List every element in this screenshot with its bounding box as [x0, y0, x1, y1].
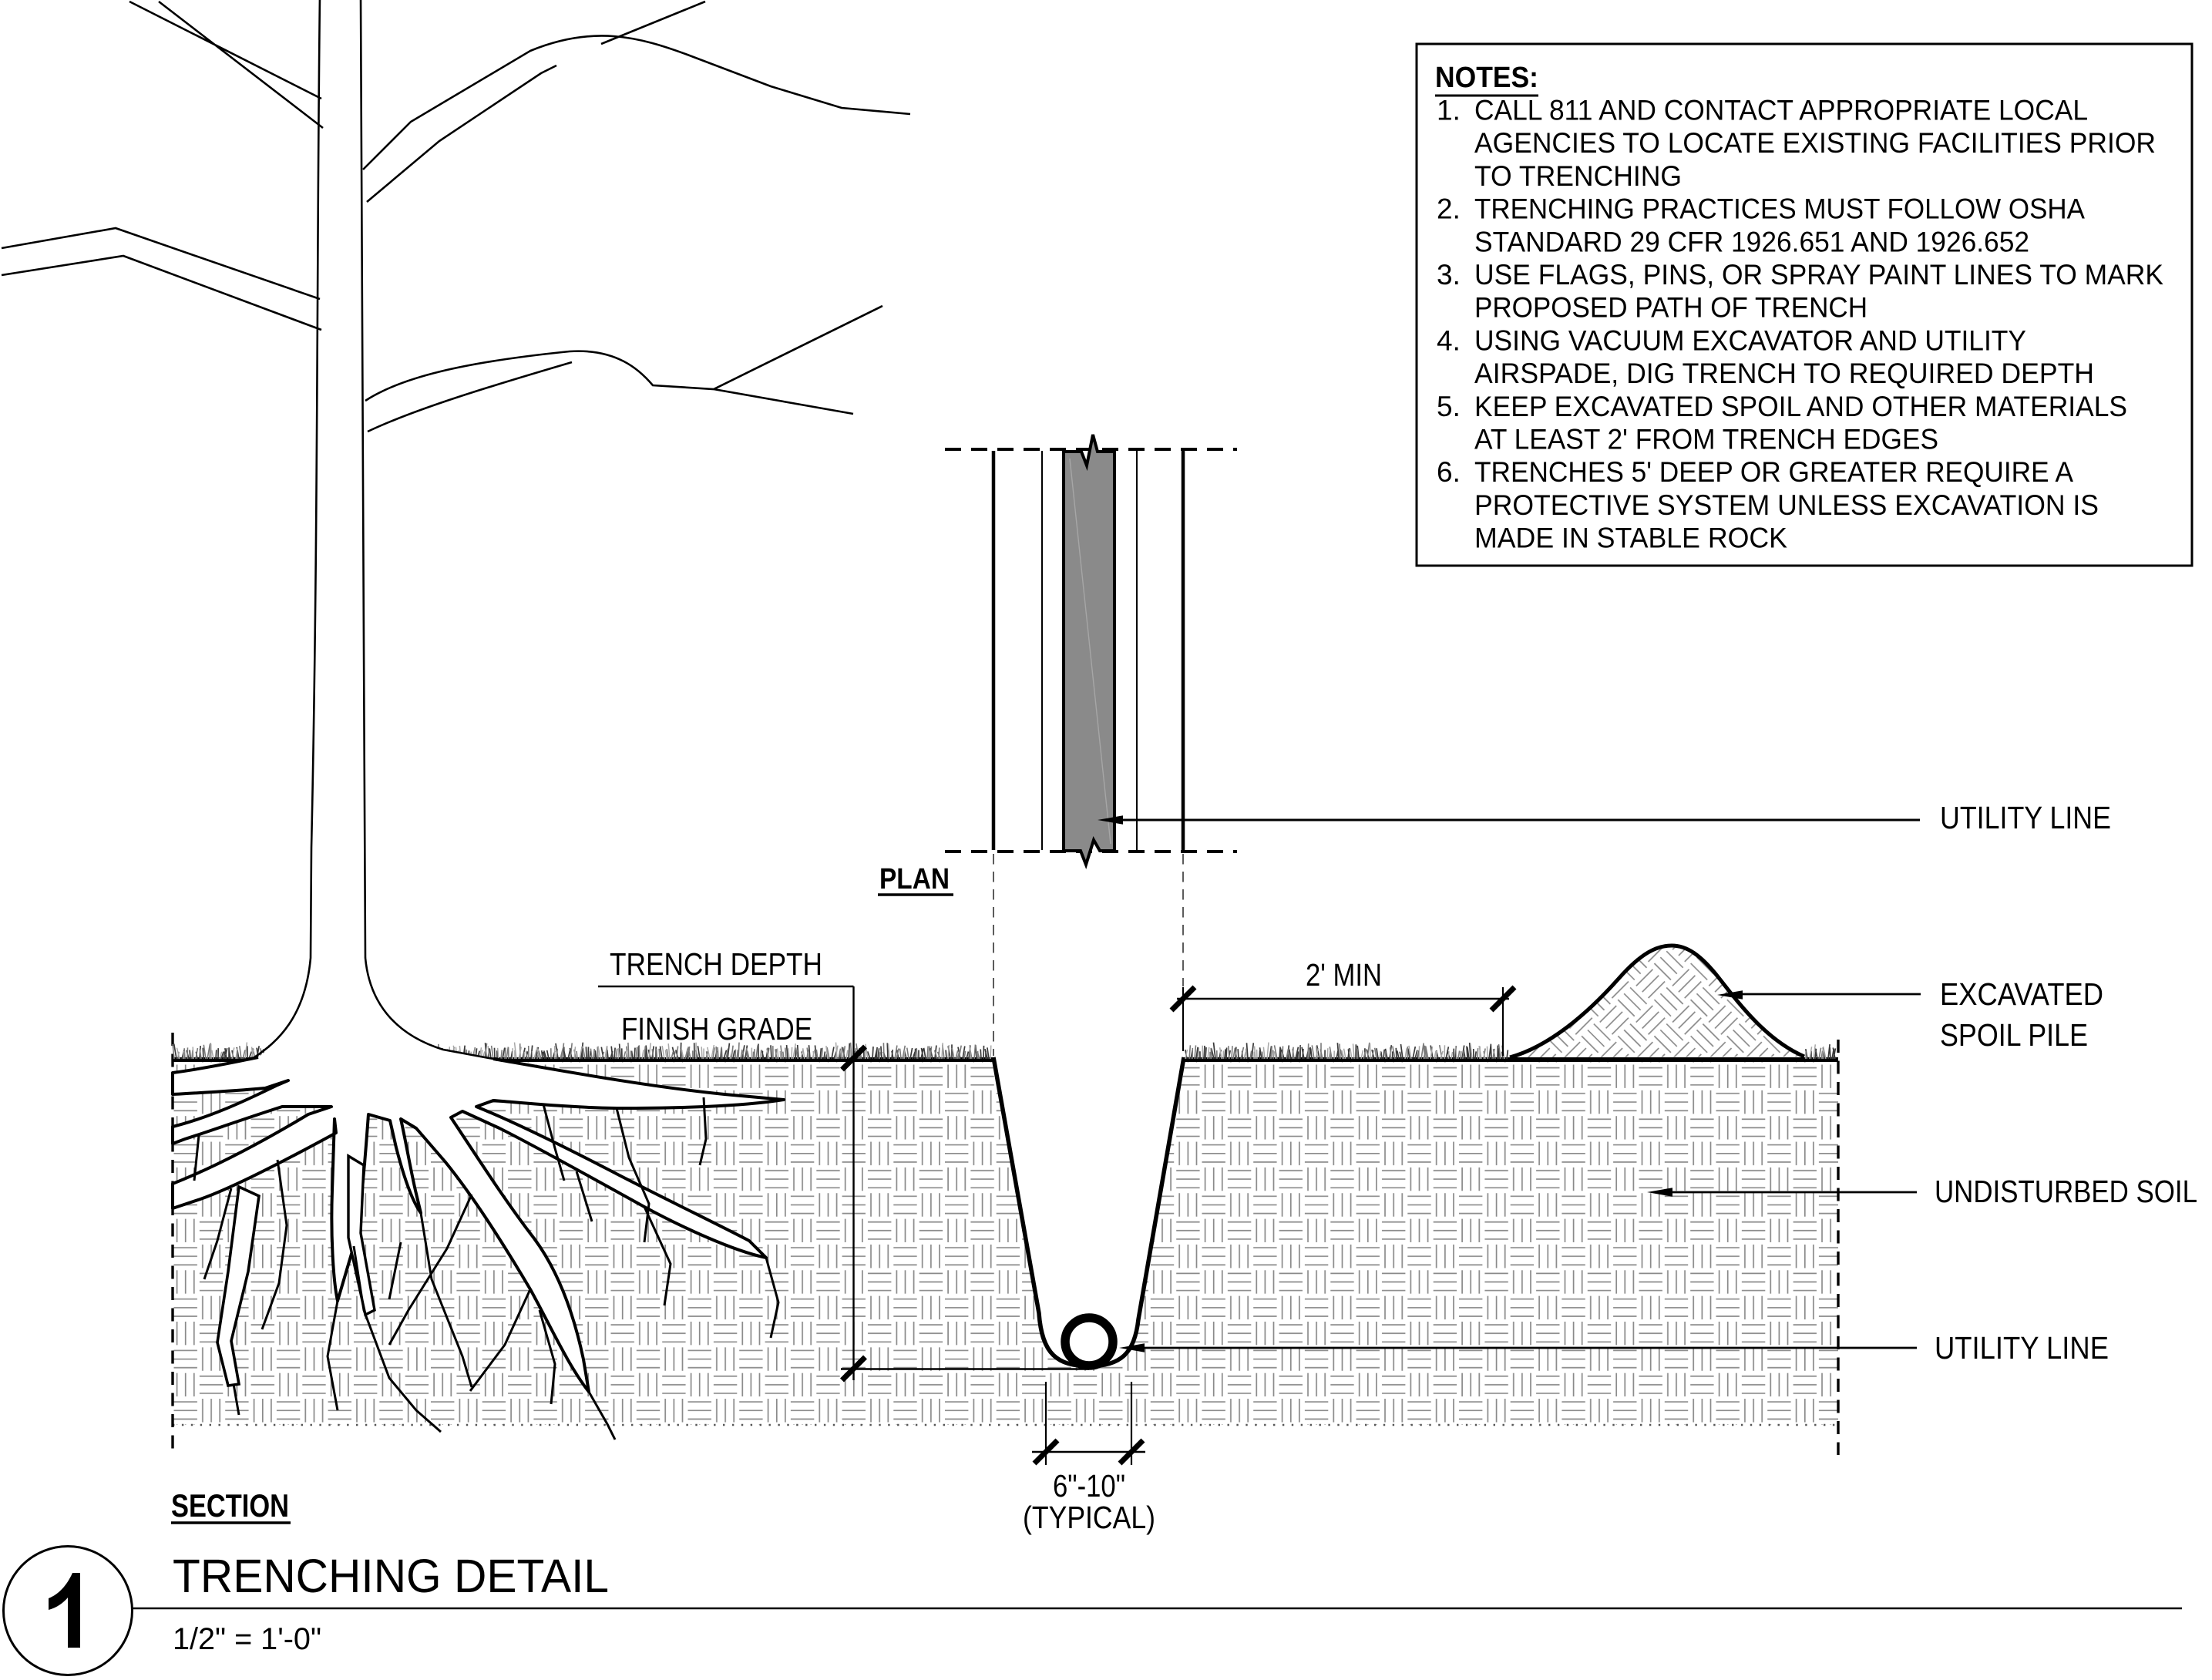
svg-text:SPOIL PILE: SPOIL PILE — [1940, 1017, 2088, 1053]
svg-text:UNDISTURBED SOIL: UNDISTURBED SOIL — [1935, 1174, 2197, 1209]
svg-text:UTILITY LINE: UTILITY LINE — [1935, 1330, 2109, 1366]
svg-text:UTILITY LINE: UTILITY LINE — [1940, 800, 2111, 835]
svg-text:FINISH GRADE: FINISH GRADE — [621, 1011, 812, 1047]
svg-text:TRENCHING DETAIL: TRENCHING DETAIL — [173, 1550, 609, 1602]
svg-text:MADE IN STABLE ROCK: MADE IN STABLE ROCK — [1474, 522, 1787, 554]
svg-text:2.: 2. — [1437, 193, 1461, 225]
svg-text:AT LEAST 2' FROM TRENCH EDGES: AT LEAST 2' FROM TRENCH EDGES — [1474, 424, 1938, 455]
svg-text:USE FLAGS, PINS, OR SPRAY PAIN: USE FLAGS, PINS, OR SPRAY PAINT LINES TO… — [1474, 259, 2163, 291]
svg-text:2' MIN: 2' MIN — [1306, 957, 1382, 993]
svg-text:3.: 3. — [1437, 259, 1461, 291]
svg-text:KEEP EXCAVATED SPOIL AND OTHER: KEEP EXCAVATED SPOIL AND OTHER MATERIALS — [1474, 391, 2127, 422]
svg-text:(TYPICAL): (TYPICAL) — [1023, 1500, 1155, 1535]
svg-text:TRENCHING PRACTICES MUST FOLLO: TRENCHING PRACTICES MUST FOLLOW OSHA — [1474, 193, 2085, 225]
svg-text:EXCAVATED: EXCAVATED — [1940, 976, 2103, 1012]
svg-text:4.: 4. — [1437, 324, 1461, 356]
svg-text:1/2" = 1'-0": 1/2" = 1'-0" — [173, 1622, 321, 1656]
svg-text:STANDARD 29 CFR 1926.651 AND 1: STANDARD 29 CFR 1926.651 AND 1926.652 — [1474, 226, 2029, 257]
svg-text:NOTES:: NOTES: — [1435, 62, 1538, 94]
svg-text:5.: 5. — [1437, 391, 1461, 422]
svg-text:TO TRENCHING: TO TRENCHING — [1474, 160, 1682, 192]
svg-text:TRENCHES 5' DEEP OR GREATER RE: TRENCHES 5' DEEP OR GREATER REQUIRE A — [1474, 456, 2073, 488]
svg-text:USING VACUUM EXCAVATOR AND UTI: USING VACUUM EXCAVATOR AND UTILITY — [1474, 324, 2026, 356]
svg-text:AIRSPADE, DIG TRENCH TO REQUIR: AIRSPADE, DIG TRENCH TO REQUIRED DEPTH — [1474, 358, 2094, 389]
svg-text:PROPOSED PATH OF TRENCH: PROPOSED PATH OF TRENCH — [1474, 292, 1867, 324]
svg-text:CALL 811 AND CONTACT APPROPRIA: CALL 811 AND CONTACT APPROPRIATE LOCAL — [1474, 95, 2088, 126]
svg-text:TRENCH DEPTH: TRENCH DEPTH — [610, 946, 822, 982]
svg-text:PROTECTIVE SYSTEM UNLESS EXCAV: PROTECTIVE SYSTEM UNLESS EXCAVATION IS — [1474, 489, 2099, 521]
svg-text:1.: 1. — [1437, 95, 1461, 126]
svg-text:6"-10": 6"-10" — [1053, 1468, 1125, 1504]
svg-text:AGENCIES TO LOCATE EXISTING FA: AGENCIES TO LOCATE EXISTING FACILITIES P… — [1474, 127, 2156, 159]
svg-text:6.: 6. — [1437, 456, 1461, 488]
svg-text:PLAN: PLAN — [879, 863, 950, 895]
svg-text:SECTION: SECTION — [171, 1487, 289, 1524]
